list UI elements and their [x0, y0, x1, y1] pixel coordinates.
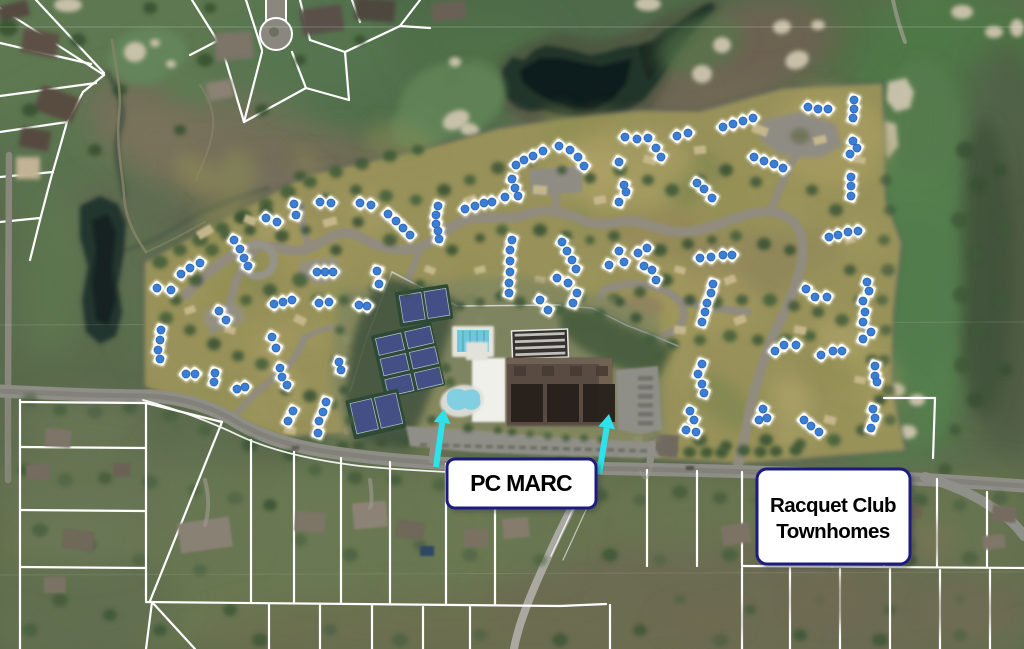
svg-text:Racquet Club: Racquet Club — [770, 494, 896, 517]
svg-text:PC MARC: PC MARC — [470, 470, 572, 496]
svg-text:Townhomes: Townhomes — [776, 520, 890, 543]
